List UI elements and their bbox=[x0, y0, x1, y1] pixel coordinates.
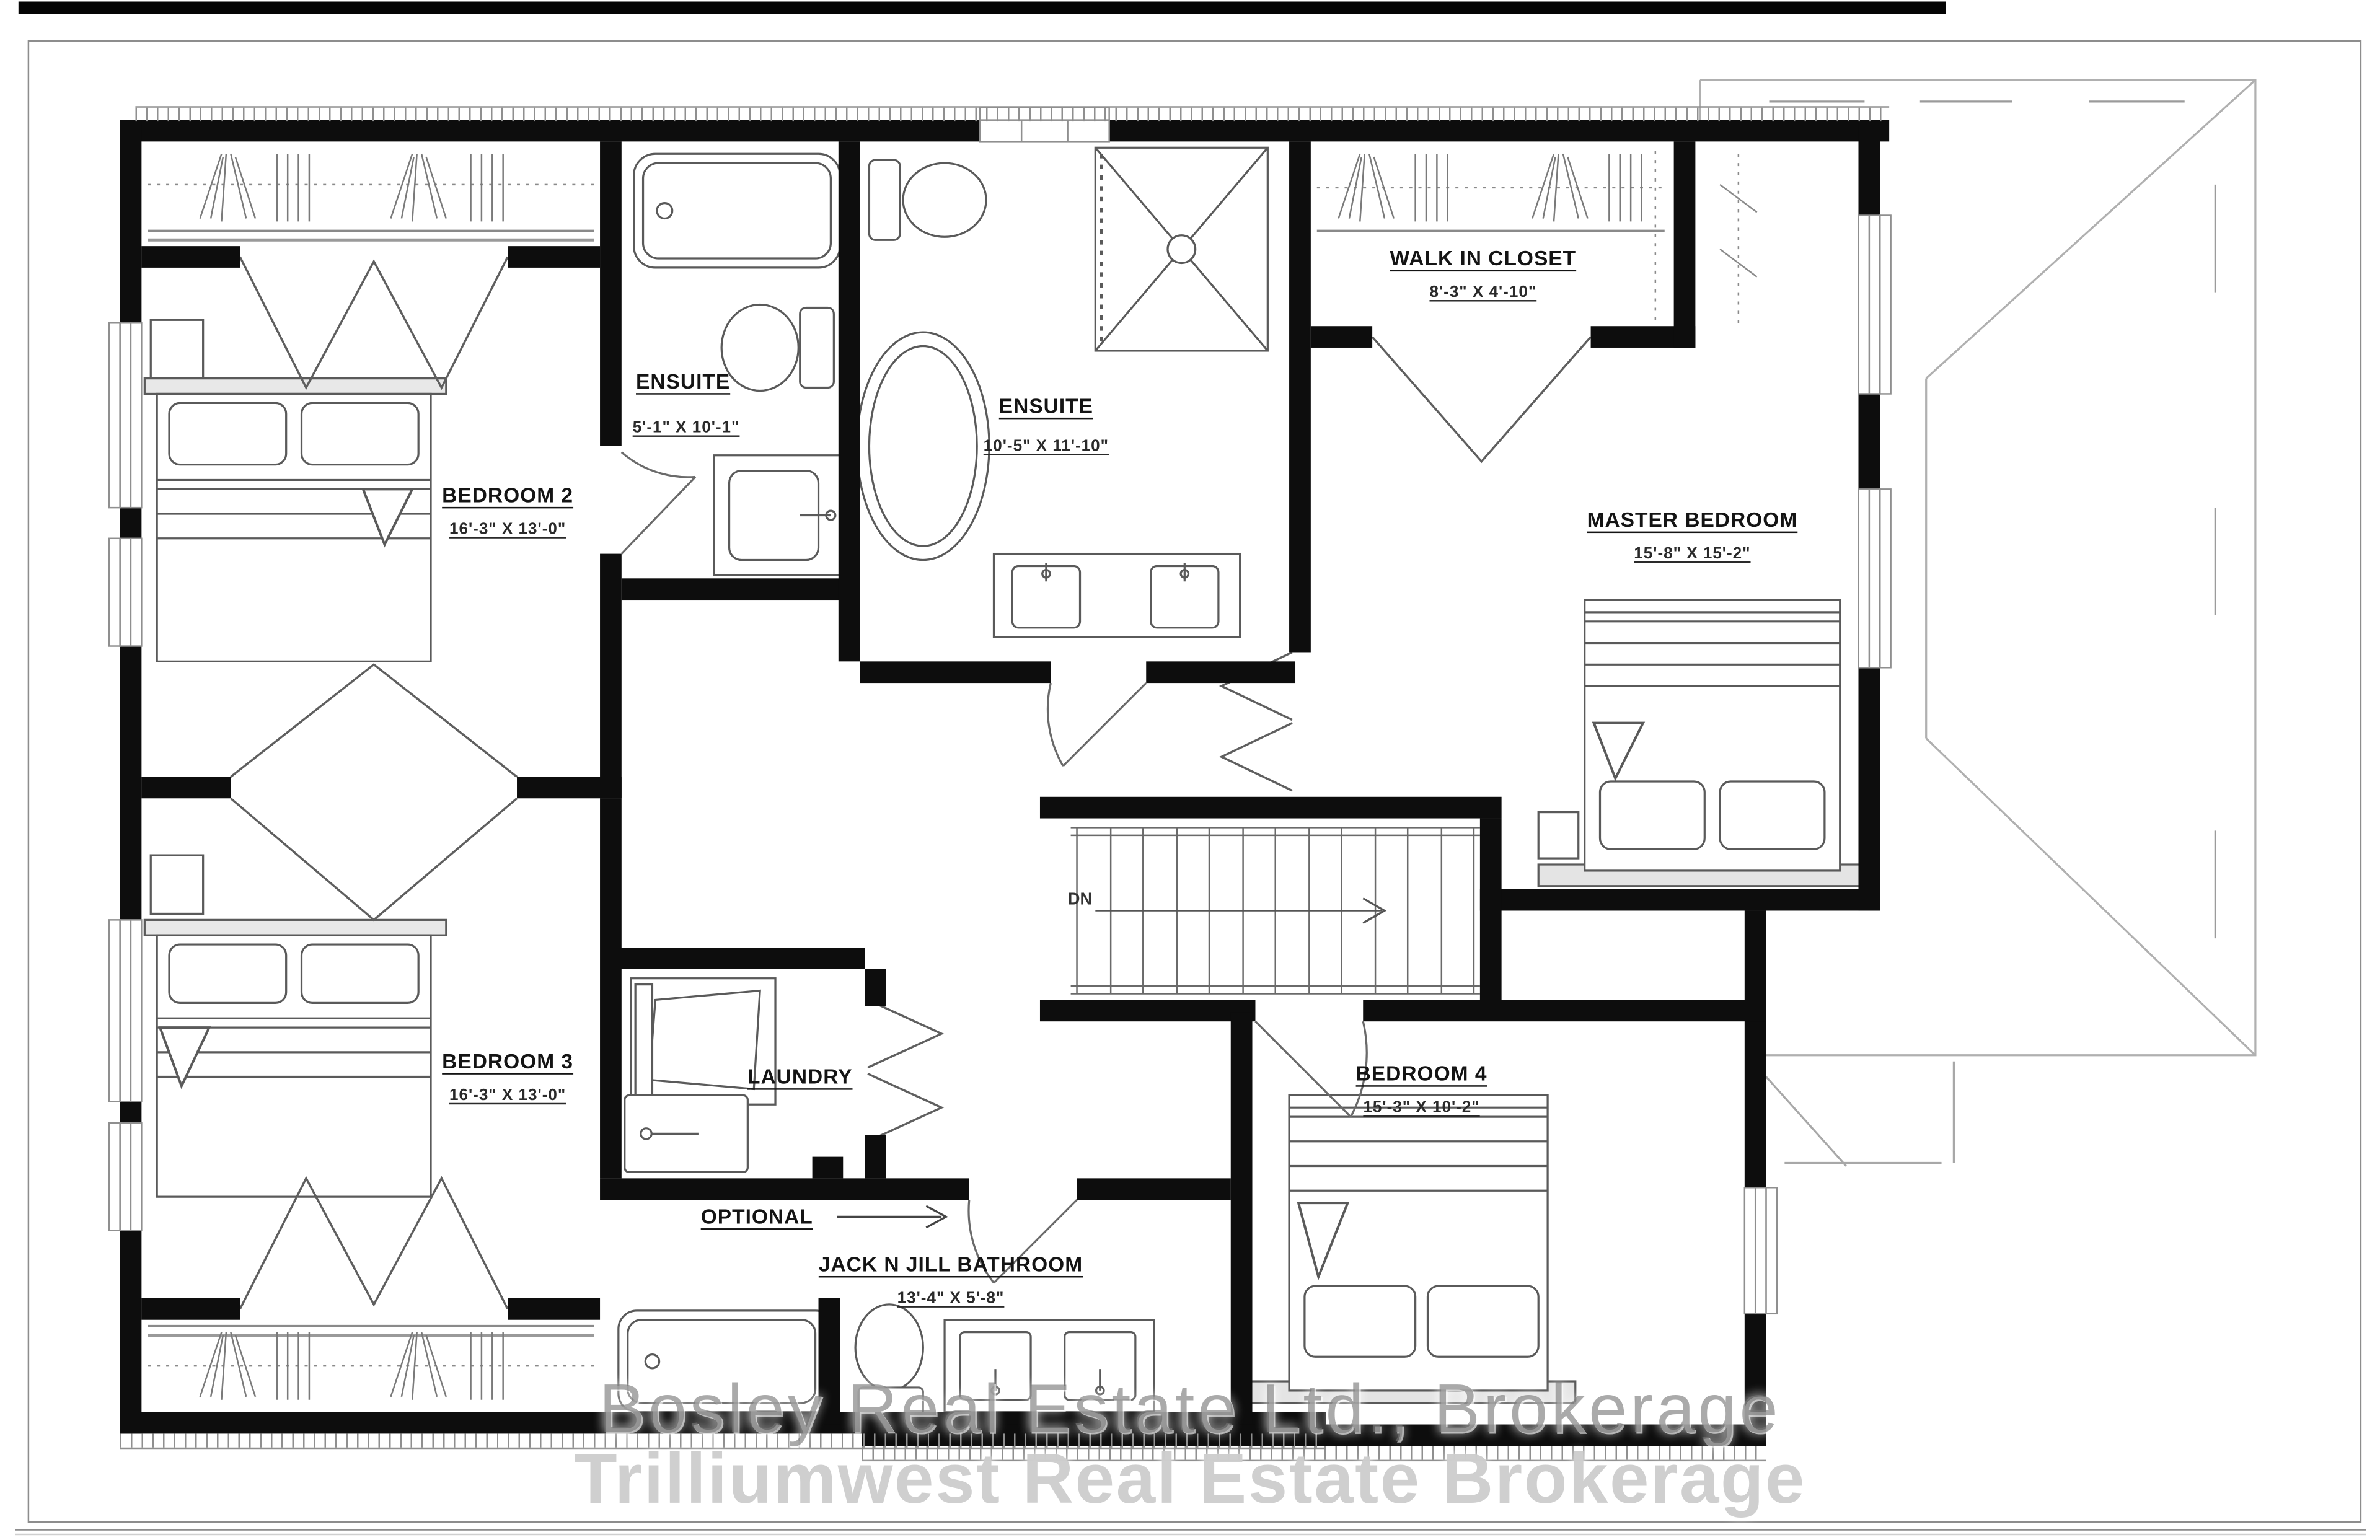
toilet-icon-ensuite1 bbox=[721, 304, 834, 390]
room-dims-bedroom4: 15'-3" X 10'-2" bbox=[1363, 1098, 1479, 1117]
freestanding-tub-icon bbox=[857, 332, 989, 560]
room-dims-bedroom3: 16'-3" X 13'-0" bbox=[449, 1086, 566, 1104]
room-dims-bedroom2: 16'-3" X 13'-0" bbox=[449, 520, 566, 539]
room-dims-ensuite2: 10'-5" X 11'-10" bbox=[984, 437, 1109, 455]
room-label-bedroom2: BEDROOM 2 bbox=[442, 484, 573, 507]
room-label-optional: OPTIONAL bbox=[701, 1205, 813, 1228]
floor-plan-page: BEDROOM 2 16'-3" X 13'-0" ENSUITE 5'-1" … bbox=[0, 0, 2380, 1540]
room-dims-master-bedroom: 15'-8" X 15'-2" bbox=[1634, 545, 1750, 563]
room-label-bedroom3: BEDROOM 3 bbox=[442, 1050, 573, 1073]
double-vanity-icon bbox=[994, 554, 1240, 637]
shower-icon bbox=[1095, 147, 1267, 351]
bathtub-icon-ensuite1 bbox=[634, 154, 840, 268]
room-dims-walkin-closet: 8'-3" X 4'-10" bbox=[1429, 283, 1536, 302]
hatch-band-top bbox=[135, 106, 1889, 121]
room-label-ensuite2: ENSUITE bbox=[999, 395, 1093, 418]
laundry-sink-icon bbox=[625, 1095, 748, 1172]
room-label-walkin-closet: WALK IN CLOSET bbox=[1390, 247, 1577, 270]
sink-icon-ensuite1 bbox=[714, 455, 840, 576]
bed-icon-bedroom4 bbox=[1246, 1095, 1576, 1402]
room-label-bedroom4: BEDROOM 4 bbox=[1356, 1062, 1487, 1085]
bed-icon-master bbox=[1538, 600, 1864, 886]
room-label-laundry: LAUNDRY bbox=[747, 1065, 853, 1088]
room-label-ensuite1: ENSUITE bbox=[636, 370, 730, 393]
room-dims-ensuite1: 5'-1" X 10'-1" bbox=[633, 418, 740, 437]
floor-plan-drawing bbox=[0, 0, 2380, 1540]
room-label-master-bedroom: MASTER BEDROOM bbox=[1587, 508, 1798, 531]
room-dims-jacknjill: 13'-4" X 5'-8" bbox=[897, 1289, 1005, 1308]
watermark-trilliumwest: Trilliumwest Real Estate Brokerage bbox=[0, 1437, 2380, 1520]
toilet-icon-ensuite2 bbox=[869, 160, 986, 240]
room-label-jacknjill: JACK N JILL BATHROOM bbox=[819, 1253, 1083, 1276]
stairs-down-label: DN bbox=[1068, 891, 1092, 909]
